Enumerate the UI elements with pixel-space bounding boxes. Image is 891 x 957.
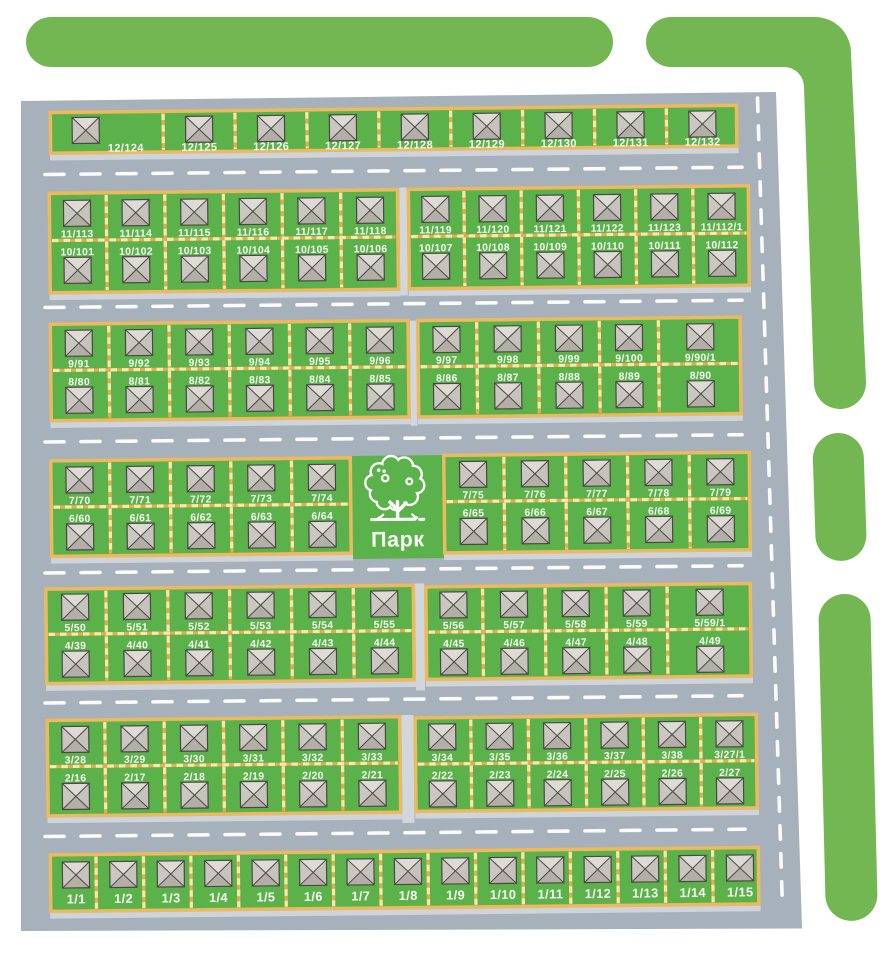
svg-text:5/56: 5/56	[443, 621, 465, 632]
svg-text:1/10: 1/10	[490, 887, 517, 902]
svg-text:9/93: 9/93	[189, 358, 211, 369]
svg-text:12/127: 12/127	[325, 140, 361, 152]
svg-text:7/71: 7/71	[129, 495, 151, 506]
svg-text:5/59/1: 5/59/1	[694, 618, 725, 629]
svg-text:9/90/1: 9/90/1	[685, 353, 716, 364]
svg-text:3/27/1: 3/27/1	[714, 750, 745, 761]
svg-text:1/3: 1/3	[161, 890, 180, 905]
svg-text:7/76: 7/76	[524, 490, 546, 501]
svg-text:12/124: 12/124	[108, 142, 145, 154]
svg-text:1/7: 1/7	[351, 888, 370, 903]
svg-text:11/112/1: 11/112/1	[701, 222, 743, 233]
svg-text:7/79: 7/79	[710, 488, 732, 499]
svg-text:7/72: 7/72	[190, 494, 212, 505]
svg-text:3/32: 3/32	[302, 753, 324, 764]
svg-text:9/95: 9/95	[309, 357, 331, 368]
svg-text:5/59: 5/59	[626, 619, 648, 630]
svg-text:1/1: 1/1	[67, 891, 86, 906]
svg-text:5/50: 5/50	[64, 623, 86, 634]
svg-text:9/91: 9/91	[68, 359, 90, 370]
svg-text:1/14: 1/14	[679, 885, 706, 900]
svg-text:12/126: 12/126	[253, 141, 289, 153]
svg-text:3/29: 3/29	[124, 755, 146, 766]
svg-text:9/98: 9/98	[497, 355, 519, 366]
svg-text:1/6: 1/6	[304, 889, 323, 904]
svg-text:11/117: 11/117	[295, 227, 328, 238]
svg-text:5/54: 5/54	[312, 620, 334, 631]
svg-text:11/113: 11/113	[61, 229, 94, 240]
svg-text:5/51: 5/51	[126, 622, 148, 633]
svg-text:11/122: 11/122	[591, 223, 624, 234]
svg-text:3/34: 3/34	[432, 753, 454, 764]
svg-text:3/38: 3/38	[661, 750, 683, 761]
svg-text:11/116: 11/116	[237, 227, 270, 238]
svg-text:3/31: 3/31	[243, 753, 265, 764]
svg-text:12/125: 12/125	[181, 142, 217, 154]
svg-text:11/123: 11/123	[648, 223, 681, 234]
svg-text:9/99: 9/99	[558, 354, 580, 365]
svg-text:1/9: 1/9	[446, 887, 465, 902]
svg-text:3/37: 3/37	[604, 751, 626, 762]
svg-text:12/129: 12/129	[469, 139, 505, 151]
svg-text:5/57: 5/57	[503, 620, 525, 631]
svg-text:1/5: 1/5	[256, 889, 275, 904]
svg-text:3/30: 3/30	[183, 754, 205, 765]
svg-text:7/70: 7/70	[69, 496, 91, 507]
svg-text:11/118: 11/118	[354, 226, 387, 237]
svg-text:Парк: Парк	[371, 527, 425, 552]
svg-text:5/53: 5/53	[250, 621, 272, 632]
svg-text:1/11: 1/11	[538, 886, 564, 901]
svg-text:11/115: 11/115	[178, 228, 211, 239]
svg-text:12/130: 12/130	[541, 138, 577, 150]
svg-text:9/96: 9/96	[369, 356, 391, 367]
svg-text:7/77: 7/77	[586, 489, 608, 500]
svg-text:5/58: 5/58	[565, 619, 587, 630]
svg-text:1/4: 1/4	[209, 890, 229, 905]
svg-text:3/33: 3/33	[361, 752, 383, 763]
svg-text:9/97: 9/97	[436, 355, 458, 366]
svg-text:12/132: 12/132	[685, 136, 721, 148]
svg-text:12/128: 12/128	[397, 139, 433, 151]
svg-text:11/114: 11/114	[119, 229, 152, 240]
svg-text:12/131: 12/131	[613, 137, 649, 149]
svg-text:5/52: 5/52	[188, 622, 210, 633]
svg-text:7/78: 7/78	[648, 488, 670, 499]
svg-text:1/2: 1/2	[114, 891, 133, 906]
svg-text:7/73: 7/73	[251, 494, 273, 505]
svg-text:7/75: 7/75	[462, 490, 484, 501]
svg-text:9/92: 9/92	[128, 358, 150, 369]
svg-text:1/15: 1/15	[727, 884, 754, 899]
svg-text:3/28: 3/28	[65, 755, 87, 766]
svg-text:1/13: 1/13	[632, 885, 659, 900]
svg-text:1/8: 1/8	[399, 888, 418, 903]
svg-text:11/120: 11/120	[476, 225, 509, 236]
svg-text:9/100: 9/100	[615, 353, 643, 364]
svg-text:11/121: 11/121	[533, 224, 566, 235]
svg-text:7/74: 7/74	[311, 493, 333, 504]
svg-text:3/35: 3/35	[489, 752, 511, 763]
svg-text:5/55: 5/55	[374, 620, 396, 631]
svg-text:3/36: 3/36	[546, 752, 568, 763]
svg-text:9/94: 9/94	[249, 357, 271, 368]
svg-text:1/12: 1/12	[585, 886, 612, 901]
svg-text:11/119: 11/119	[419, 225, 452, 236]
